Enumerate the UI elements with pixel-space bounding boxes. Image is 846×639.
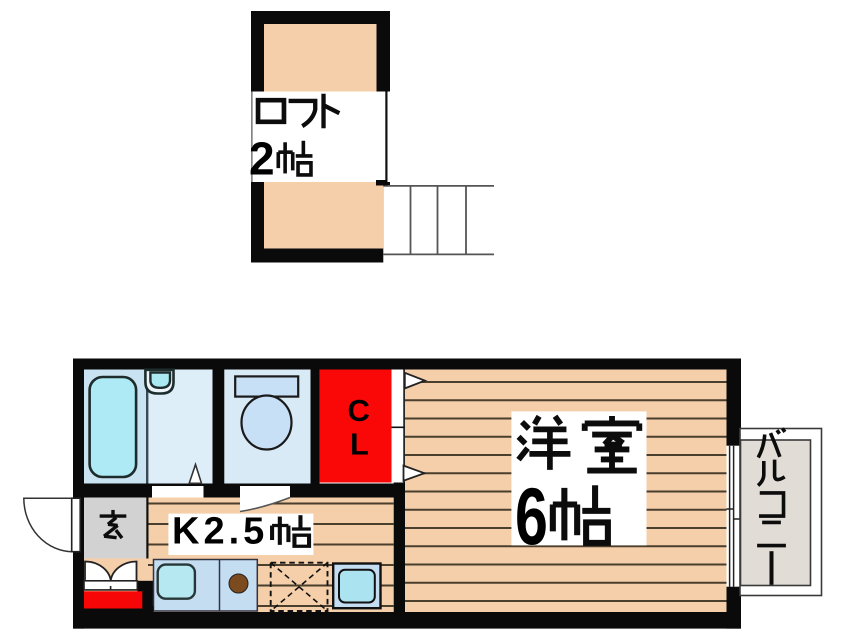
svg-text:C: C xyxy=(348,393,370,428)
svg-text:K2.5: K2.5 xyxy=(172,511,268,553)
svg-text:2: 2 xyxy=(249,133,275,185)
svg-text:6: 6 xyxy=(515,472,548,562)
svg-text:L: L xyxy=(350,427,369,462)
